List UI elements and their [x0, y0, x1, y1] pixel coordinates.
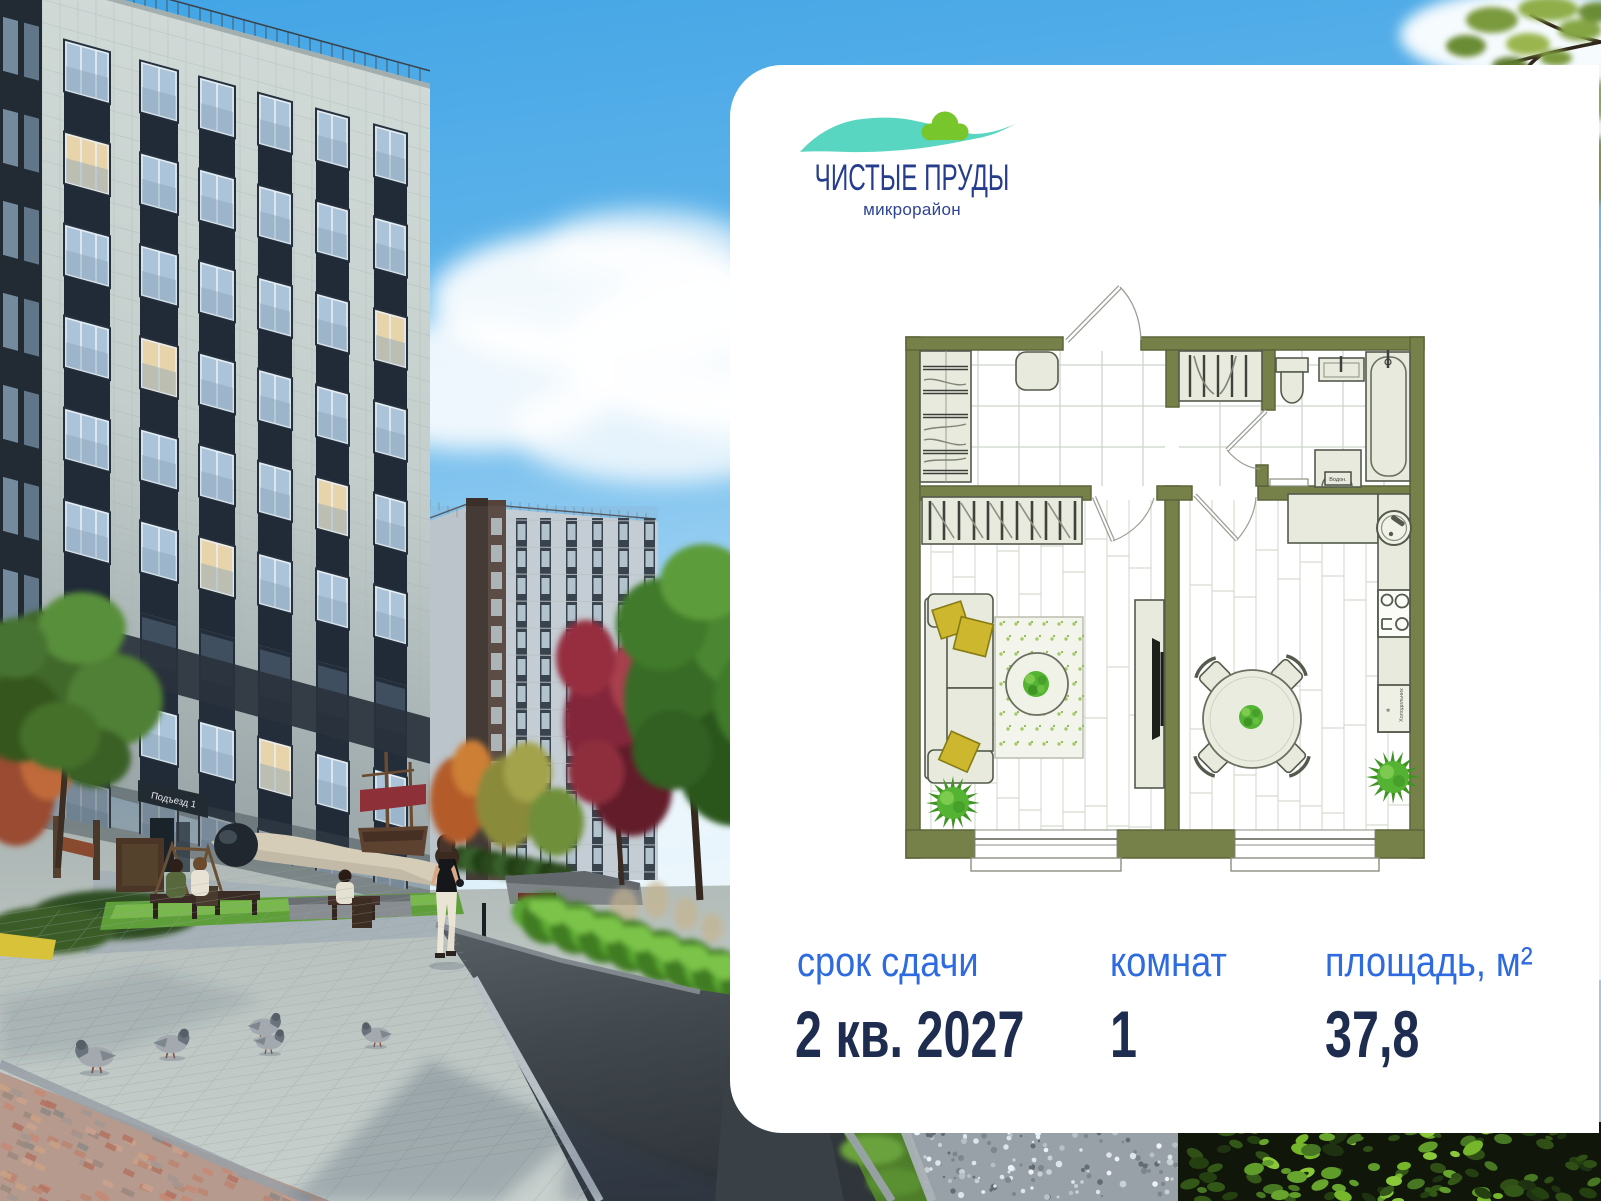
- svg-text:❄: ❄: [1386, 708, 1390, 714]
- svg-text:Водон.: Водон.: [1329, 477, 1347, 483]
- svg-text:Холодильник: Холодильник: [1399, 688, 1405, 722]
